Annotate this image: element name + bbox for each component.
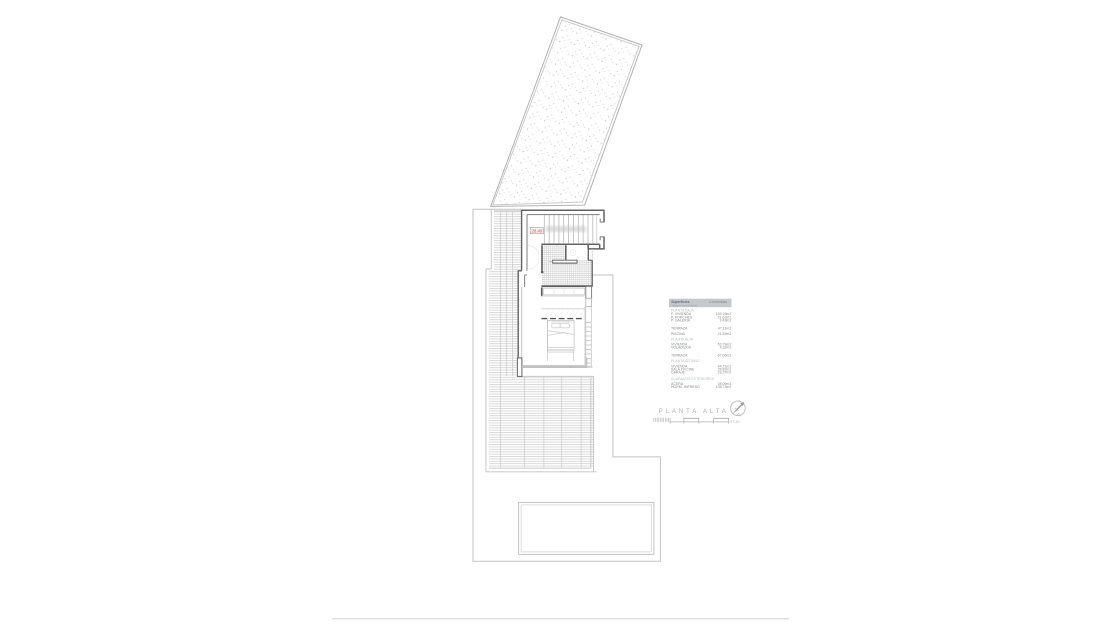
svg-text:28.40: 28.40	[532, 228, 543, 233]
svg-text:Construidas: Construidas	[709, 300, 727, 304]
svg-text:PLANTA ALTA: PLANTA ALTA	[671, 337, 694, 341]
svg-text:21.55m2: 21.55m2	[718, 332, 732, 336]
svg-text:0 1 2m: 0 1 2m	[731, 420, 741, 424]
svg-text:TERRAZA: TERRAZA	[671, 327, 688, 331]
svg-text:GARAJE: GARAJE	[671, 371, 686, 375]
svg-text:47.11m2: 47.11m2	[718, 327, 731, 331]
svg-text:ACABADOS EXTERIORES: ACABADOS EXTERIORES	[671, 377, 715, 381]
svg-text:29.37m2: 29.37m2	[718, 371, 732, 375]
svg-text:TERRAZA: TERRAZA	[671, 354, 688, 358]
svg-text:9.43m2: 9.43m2	[720, 318, 732, 322]
svg-text:PLANTA SOTANO: PLANTA SOTANO	[671, 359, 700, 363]
svg-text:4.32m2: 4.32m2	[720, 346, 732, 350]
svg-text:PLANTA ALTA: PLANTA ALTA	[659, 409, 729, 415]
svg-text:VOLADIZOS: VOLADIZOS	[671, 346, 692, 350]
svg-text:HORM. IMPRESO: HORM. IMPRESO	[671, 385, 700, 389]
svg-text:Totales construidos: Totales construidos	[671, 304, 697, 308]
svg-text:67.06m2: 67.06m2	[718, 354, 732, 358]
svg-text:108.73m2: 108.73m2	[716, 385, 732, 389]
svg-text:P. GALERIA: P. GALERIA	[671, 318, 691, 322]
svg-text:PISCINA: PISCINA	[671, 332, 686, 336]
